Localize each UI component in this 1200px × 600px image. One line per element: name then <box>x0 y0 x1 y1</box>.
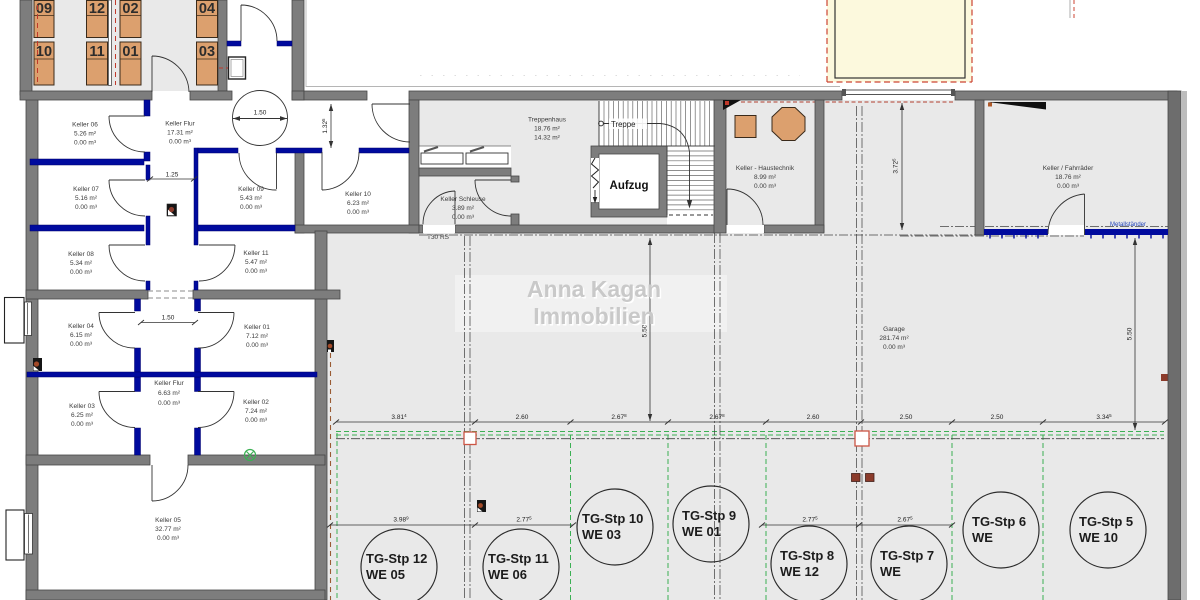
svg-text:Keller 017.12 m²0.00 m³: Keller 017.12 m²0.00 m³ <box>244 324 270 349</box>
svg-text:2.50: 2.50 <box>991 414 1004 421</box>
svg-text:TG-Stp 7: TG-Stp 7 <box>880 548 934 563</box>
svg-text:TG-Stp 11: TG-Stp 11 <box>488 551 549 566</box>
svg-text:Anna Kagan: Anna Kagan <box>527 276 661 302</box>
svg-text:04: 04 <box>199 1 215 17</box>
svg-text:Treppe: Treppe <box>611 120 635 129</box>
svg-text:1.50: 1.50 <box>254 110 267 117</box>
svg-text:TG-Stp 10: TG-Stp 10 <box>582 511 643 526</box>
svg-text:TG-Stp 6: TG-Stp 6 <box>972 514 1026 529</box>
svg-text:5.50: 5.50 <box>1127 327 1134 340</box>
svg-text:WE 01: WE 01 <box>682 524 721 539</box>
svg-text:Keller 0532.77 m²0.00 m³: Keller 0532.77 m²0.00 m³ <box>155 517 181 542</box>
svg-text:Keller 106.23 m²0.00 m³: Keller 106.23 m²0.00 m³ <box>345 191 371 216</box>
svg-text:TG-Stp 12: TG-Stp 12 <box>366 551 427 566</box>
svg-text:02: 02 <box>122 1 138 17</box>
svg-text:Keller 095.43 m²0.00 m³: Keller 095.43 m²0.00 m³ <box>238 186 264 211</box>
svg-text:T30 RS: T30 RS <box>427 234 450 241</box>
svg-text:WE 10: WE 10 <box>1079 530 1118 545</box>
svg-text:TG-Stp 8: TG-Stp 8 <box>780 548 834 563</box>
svg-text:TG-Stp 9: TG-Stp 9 <box>682 508 736 523</box>
svg-text:Immobilien: Immobilien <box>533 303 654 329</box>
svg-text:Aufzug: Aufzug <box>610 180 649 192</box>
svg-text:Keller 085.34 m²0.00 m³: Keller 085.34 m²0.00 m³ <box>68 251 94 276</box>
svg-text:1.25: 1.25 <box>166 172 179 179</box>
svg-text:WE 12: WE 12 <box>780 564 819 579</box>
svg-text:Keller 065.26 m²0.00 m³: Keller 065.26 m²0.00 m³ <box>72 122 98 147</box>
svg-text:TG-Stp 5: TG-Stp 5 <box>1079 514 1133 529</box>
svg-text:09: 09 <box>36 1 52 17</box>
svg-text:WE 05: WE 05 <box>366 567 405 582</box>
svg-text:03: 03 <box>199 44 215 60</box>
svg-text:1.50: 1.50 <box>162 315 175 322</box>
svg-text:12: 12 <box>89 1 105 17</box>
svg-text:Keller 046.15 m²0.00 m³: Keller 046.15 m²0.00 m³ <box>68 323 94 348</box>
svg-text:Keller 036.25 m²0.00 m³: Keller 036.25 m²0.00 m³ <box>69 403 95 428</box>
svg-text:Keller 075.16 m²0.00 m³: Keller 075.16 m²0.00 m³ <box>73 186 99 211</box>
svg-text:2.60: 2.60 <box>516 414 529 421</box>
svg-text:01: 01 <box>122 44 138 60</box>
svg-text:2.50: 2.50 <box>900 414 913 421</box>
svg-text:11: 11 <box>89 44 104 60</box>
svg-text:WE: WE <box>972 530 993 545</box>
svg-text:Keller 027.24 m²0.00 m³: Keller 027.24 m²0.00 m³ <box>243 399 269 424</box>
svg-text:10: 10 <box>36 44 52 60</box>
svg-text:Keller 115.47 m²0.00 m³: Keller 115.47 m²0.00 m³ <box>243 250 269 275</box>
svg-text:Metallständer: Metallständer <box>1110 222 1146 228</box>
svg-text:2.60: 2.60 <box>807 414 820 421</box>
svg-text:WE 06: WE 06 <box>488 567 527 582</box>
svg-text:WE: WE <box>880 564 901 579</box>
svg-text:WE 03: WE 03 <box>582 527 621 542</box>
